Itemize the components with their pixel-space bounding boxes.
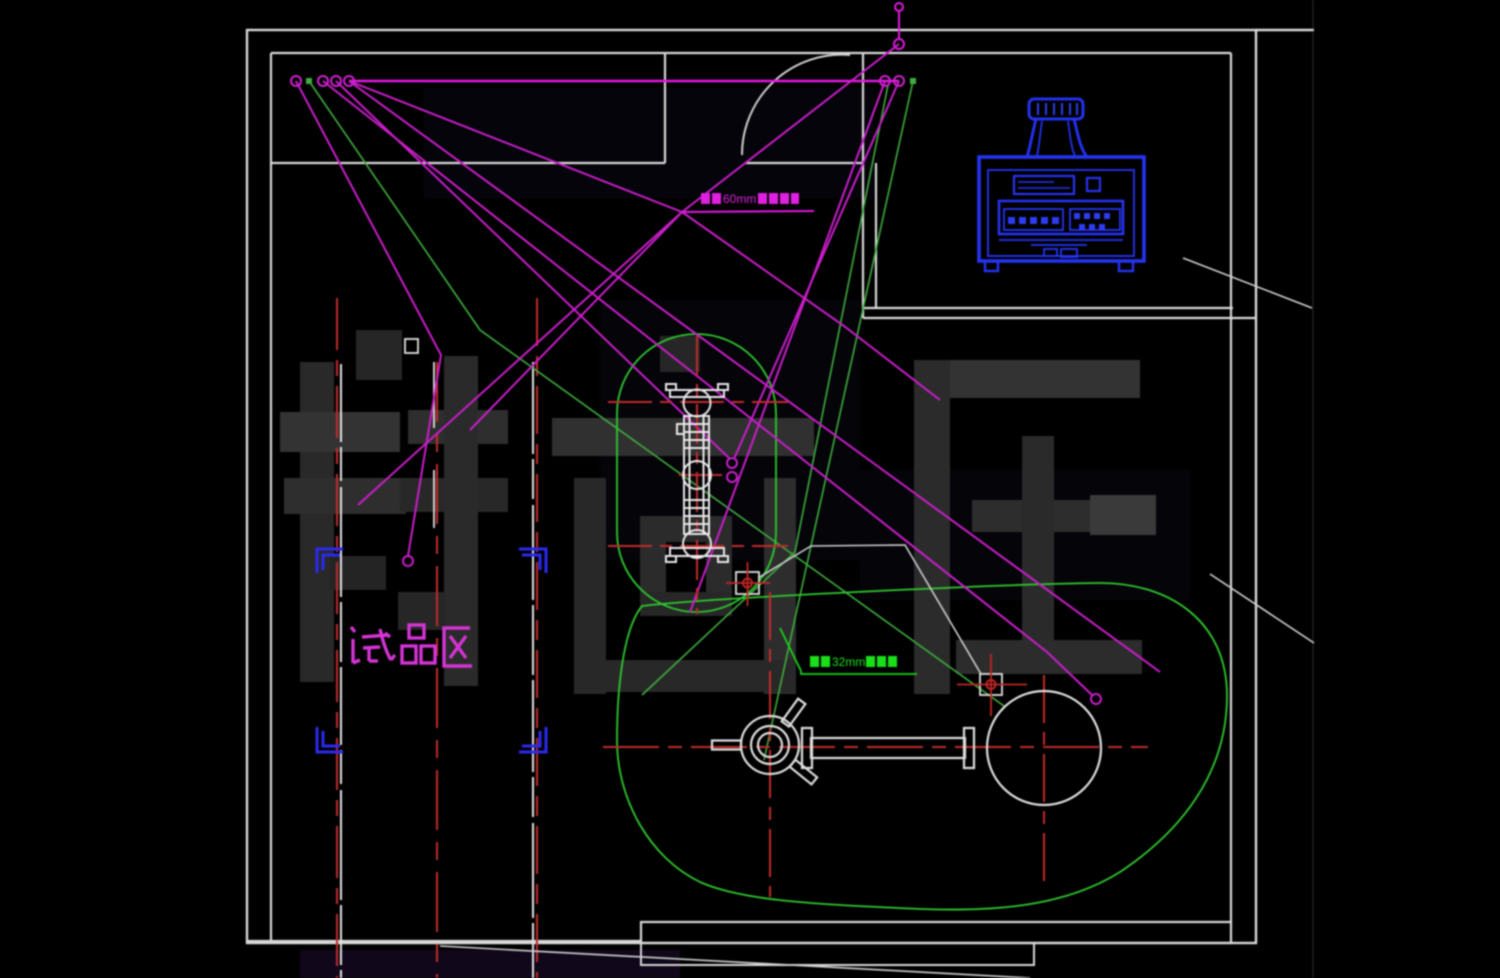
svg-text:60mm: 60mm xyxy=(723,192,756,206)
svg-text:32mm: 32mm xyxy=(832,655,865,669)
